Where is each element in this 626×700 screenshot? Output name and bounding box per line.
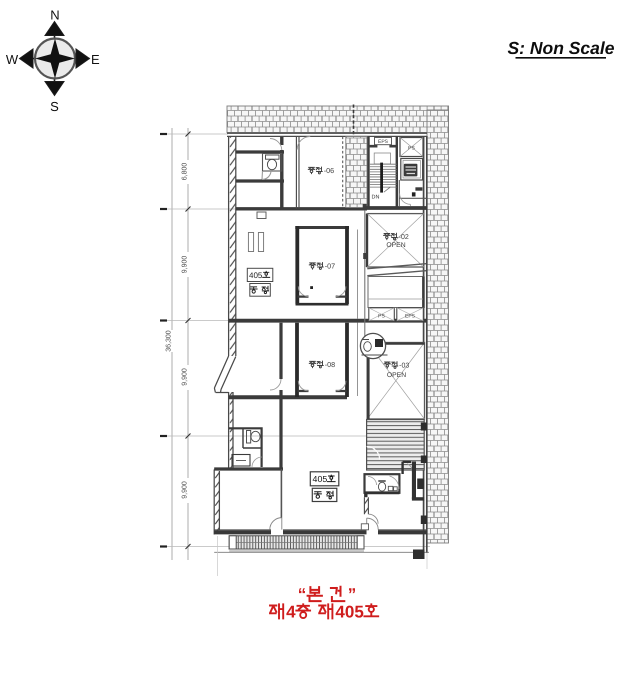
svg-text:EPS: EPS bbox=[378, 139, 389, 145]
svg-text:-07: -07 bbox=[325, 262, 335, 271]
svg-text:-06: -06 bbox=[324, 166, 334, 175]
svg-text:-03: -03 bbox=[399, 362, 409, 369]
svg-text:9,900: 9,900 bbox=[182, 481, 189, 499]
svg-text:”: ” bbox=[348, 585, 357, 604]
svg-text:-08: -08 bbox=[325, 360, 335, 369]
svg-text:E: E bbox=[91, 52, 100, 67]
svg-text:36,300: 36,300 bbox=[166, 330, 173, 352]
svg-text:N: N bbox=[50, 8, 59, 23]
svg-text:OPEN: OPEN bbox=[387, 372, 406, 379]
svg-text:4: 4 bbox=[286, 603, 296, 622]
svg-text:9,900: 9,900 bbox=[182, 256, 189, 274]
svg-text:“: “ bbox=[298, 585, 307, 604]
svg-text:S: Non Scale: S: Non Scale bbox=[508, 38, 615, 58]
svg-text:405: 405 bbox=[335, 603, 363, 622]
svg-text:405: 405 bbox=[249, 271, 263, 280]
svg-text:S: S bbox=[50, 99, 59, 114]
svg-text:OPEN: OPEN bbox=[386, 242, 405, 249]
svg-text:9,900: 9,900 bbox=[182, 368, 189, 386]
svg-text:EPS: EPS bbox=[405, 314, 416, 320]
svg-text:W: W bbox=[6, 52, 19, 67]
svg-text:PS: PS bbox=[408, 146, 415, 152]
svg-text:-02: -02 bbox=[399, 234, 409, 241]
svg-text:DN: DN bbox=[372, 195, 380, 201]
svg-text:405: 405 bbox=[313, 474, 328, 484]
svg-text:6,800: 6,800 bbox=[182, 163, 189, 181]
svg-text:PS: PS bbox=[378, 314, 385, 320]
